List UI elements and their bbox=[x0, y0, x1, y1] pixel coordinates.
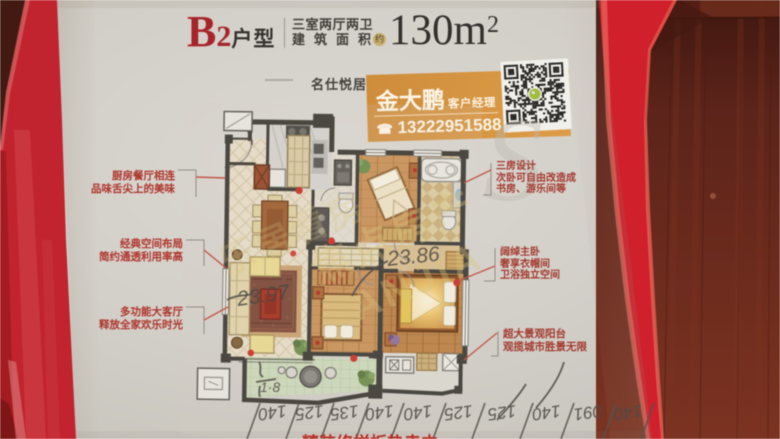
svg-text:140: 140 bbox=[612, 401, 643, 424]
svg-text:125: 125 bbox=[294, 401, 325, 424]
svg-text:135: 135 bbox=[329, 401, 360, 424]
svg-text:140: 140 bbox=[364, 401, 395, 424]
svg-text:S: S bbox=[483, 93, 543, 226]
svg-text:140: 140 bbox=[531, 401, 562, 424]
svg-text:精装修样板热卖中: 精装修样板热卖中 bbox=[302, 433, 438, 439]
svg-text:125: 125 bbox=[443, 401, 474, 424]
svg-text:091: 091 bbox=[573, 401, 604, 424]
svg-text:1·8: 1·8 bbox=[260, 379, 280, 395]
svg-text:125: 125 bbox=[486, 401, 517, 424]
svg-text:140: 140 bbox=[402, 401, 433, 424]
svg-text:140: 140 bbox=[257, 401, 288, 424]
svg-text:23.86: 23.86 bbox=[385, 243, 441, 272]
svg-text:23.97: 23.97 bbox=[235, 281, 293, 311]
